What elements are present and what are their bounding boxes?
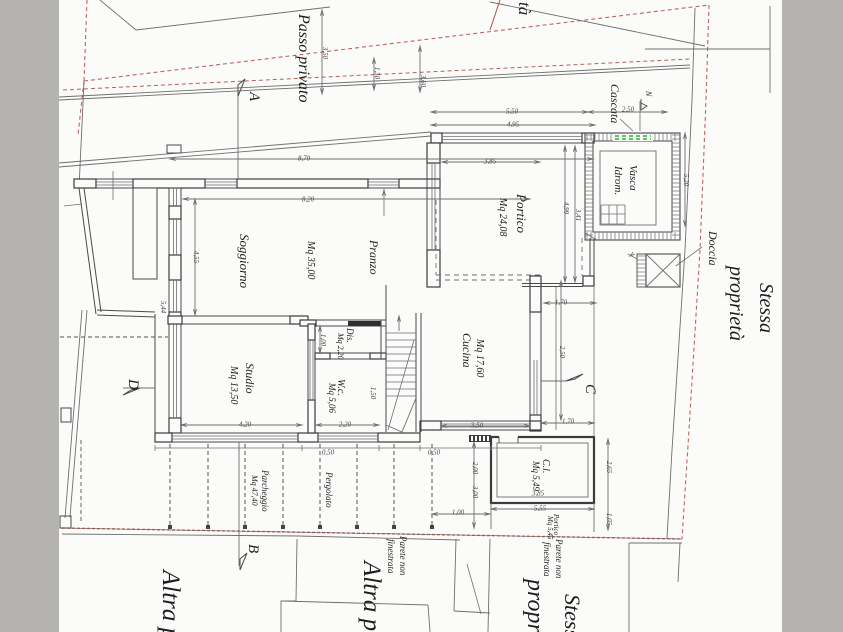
- svg-text:Mq 24,08: Mq 24,08: [497, 197, 508, 236]
- svg-text:finestrata: finestrata: [542, 542, 552, 577]
- svg-text:5,50: 5,50: [506, 107, 519, 115]
- svg-text:propri: propri: [522, 577, 548, 632]
- svg-text:8,20: 8,20: [302, 195, 315, 203]
- svg-text:Mq 5,06: Mq 5,06: [327, 382, 337, 413]
- svg-text:tà: tà: [515, 2, 534, 15]
- svg-text:2,50: 2,50: [622, 105, 635, 113]
- svg-text:3,60: 3,60: [419, 74, 427, 88]
- svg-text:Soggiorno: Soggiorno: [237, 234, 252, 289]
- svg-text:4,55: 4,55: [192, 251, 200, 264]
- svg-text:0,50: 0,50: [428, 448, 441, 456]
- svg-text:B: B: [245, 544, 261, 553]
- svg-text:4,20: 4,20: [239, 420, 252, 428]
- svg-text:Cucina: Cucina: [460, 333, 474, 368]
- svg-text:1,05: 1,05: [605, 513, 613, 526]
- svg-text:Stessa: Stessa: [560, 594, 585, 632]
- svg-text:3,50: 3,50: [470, 421, 484, 429]
- svg-text:C: C: [582, 384, 598, 395]
- svg-text:proprietà: proprietà: [725, 264, 747, 341]
- svg-text:Pranzo: Pranzo: [367, 239, 381, 275]
- svg-text:Vasca: Vasca: [627, 165, 639, 191]
- svg-text:Parete non: Parete non: [554, 538, 564, 579]
- svg-text:1,00: 1,00: [319, 334, 327, 347]
- svg-text:Mq 2,20: Mq 2,20: [336, 332, 345, 360]
- svg-text:Mq 5,45: Mq 5,45: [546, 515, 554, 540]
- svg-text:Parcheggio: Parcheggio: [260, 469, 270, 512]
- svg-text:Stessa: Stessa: [755, 283, 777, 333]
- svg-text:8,70: 8,70: [298, 154, 311, 162]
- svg-text:Dis.: Dis.: [345, 327, 355, 343]
- svg-text:4,99: 4,99: [562, 202, 570, 215]
- svg-text:Altra prop: Altra prop: [358, 559, 385, 632]
- svg-text:2,65: 2,65: [605, 461, 613, 474]
- svg-text:2,00: 2,00: [471, 462, 479, 475]
- svg-text:Mq 35,00: Mq 35,00: [305, 240, 316, 279]
- svg-text:3,41: 3,41: [574, 208, 582, 221]
- svg-text:Studio: Studio: [243, 363, 257, 394]
- svg-text:1,70: 1,70: [562, 417, 575, 425]
- svg-text:Mq 13,50: Mq 13,50: [228, 365, 239, 404]
- svg-text:A: A: [246, 91, 262, 102]
- svg-text:Idrom.: Idrom.: [612, 165, 624, 195]
- svg-text:5,55: 5,55: [534, 504, 547, 512]
- svg-text:Portico: Portico: [514, 193, 529, 233]
- svg-text:Mq 17,60: Mq 17,60: [474, 338, 485, 377]
- svg-text:4,95: 4,95: [507, 120, 520, 128]
- svg-text:Passo privato: Passo privato: [295, 13, 312, 102]
- svg-text:Mq 5,49: Mq 5,49: [531, 460, 541, 491]
- svg-text:Altra prop: Altra prop: [157, 568, 184, 632]
- svg-text:Pergolato: Pergolato: [324, 471, 334, 508]
- svg-text:5,44: 5,44: [159, 301, 167, 314]
- svg-text:Cascata: Cascata: [608, 84, 622, 123]
- svg-text:Doccia: Doccia: [706, 230, 720, 266]
- svg-text:N: N: [644, 90, 653, 97]
- svg-text:1,50: 1,50: [373, 67, 381, 80]
- svg-text:5,20: 5,20: [682, 174, 690, 187]
- svg-text:3,85: 3,85: [483, 157, 497, 165]
- svg-text:3,50: 3,50: [321, 46, 329, 60]
- svg-text:1,50: 1,50: [369, 387, 377, 400]
- svg-text:Parete non: Parete non: [398, 535, 408, 576]
- svg-text:2,20: 2,20: [339, 420, 352, 428]
- svg-text:Mq 47,40: Mq 47,40: [250, 474, 259, 506]
- svg-text:D: D: [125, 378, 141, 390]
- svg-text:finestrata: finestrata: [386, 539, 396, 574]
- svg-text:2,50: 2,50: [558, 346, 566, 359]
- svg-text:1,00: 1,00: [452, 508, 465, 516]
- svg-text:0,50: 0,50: [322, 448, 335, 456]
- svg-text:3,00: 3,00: [471, 485, 479, 499]
